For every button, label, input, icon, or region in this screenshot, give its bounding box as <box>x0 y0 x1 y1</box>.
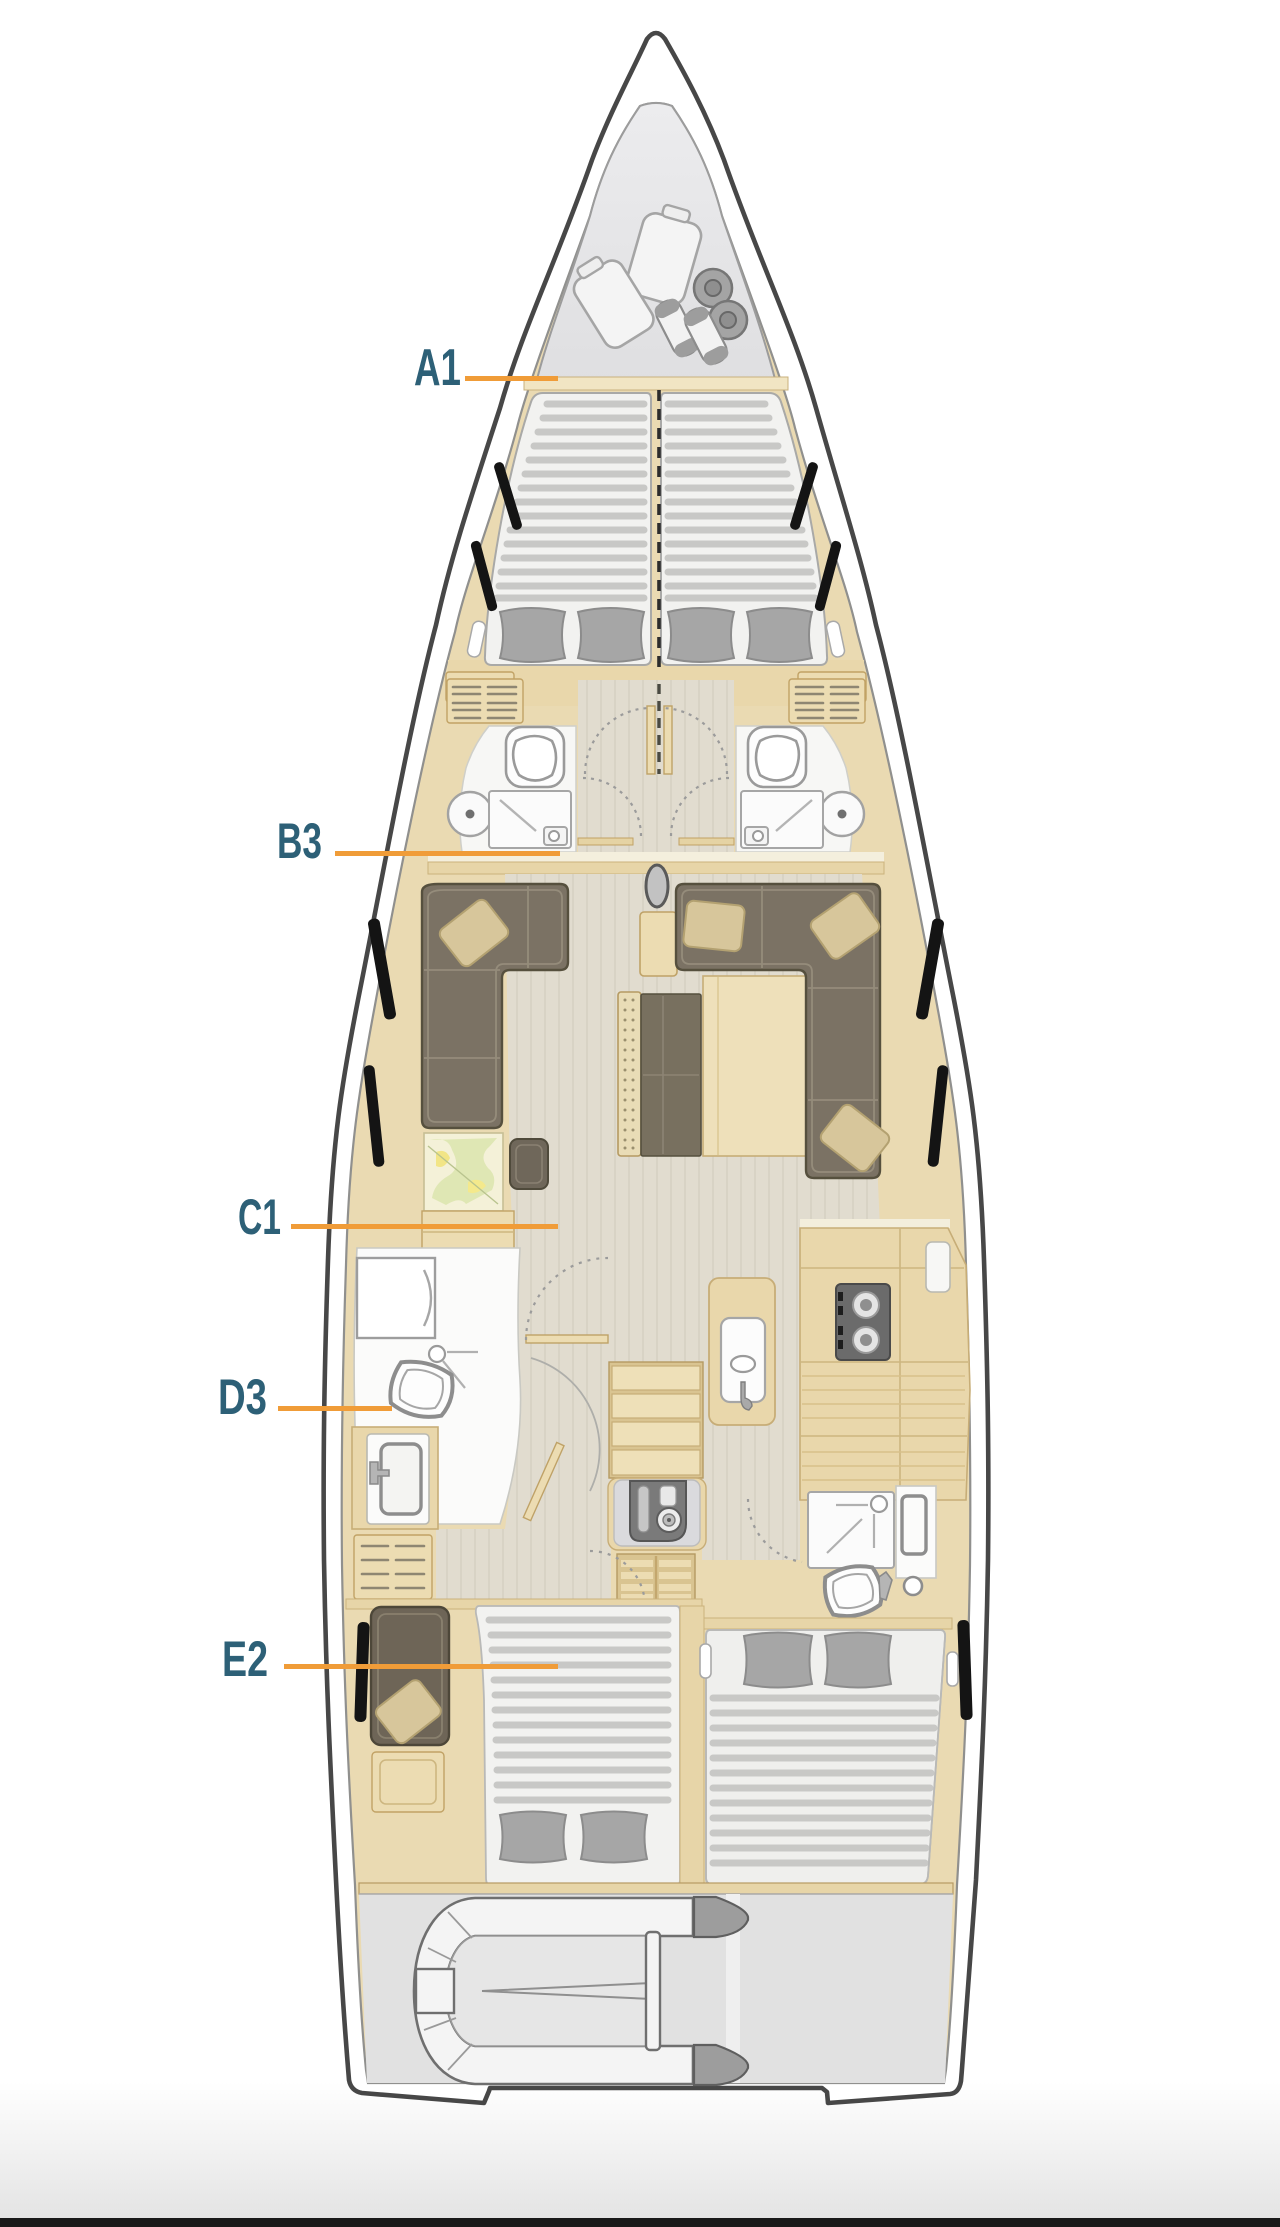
svg-text:D3: D3 <box>218 1369 267 1425</box>
svg-text:B3: B3 <box>277 813 322 869</box>
svg-text:A1: A1 <box>414 339 461 397</box>
svg-text:E2: E2 <box>222 1631 268 1687</box>
svg-text:C1: C1 <box>238 1189 281 1245</box>
